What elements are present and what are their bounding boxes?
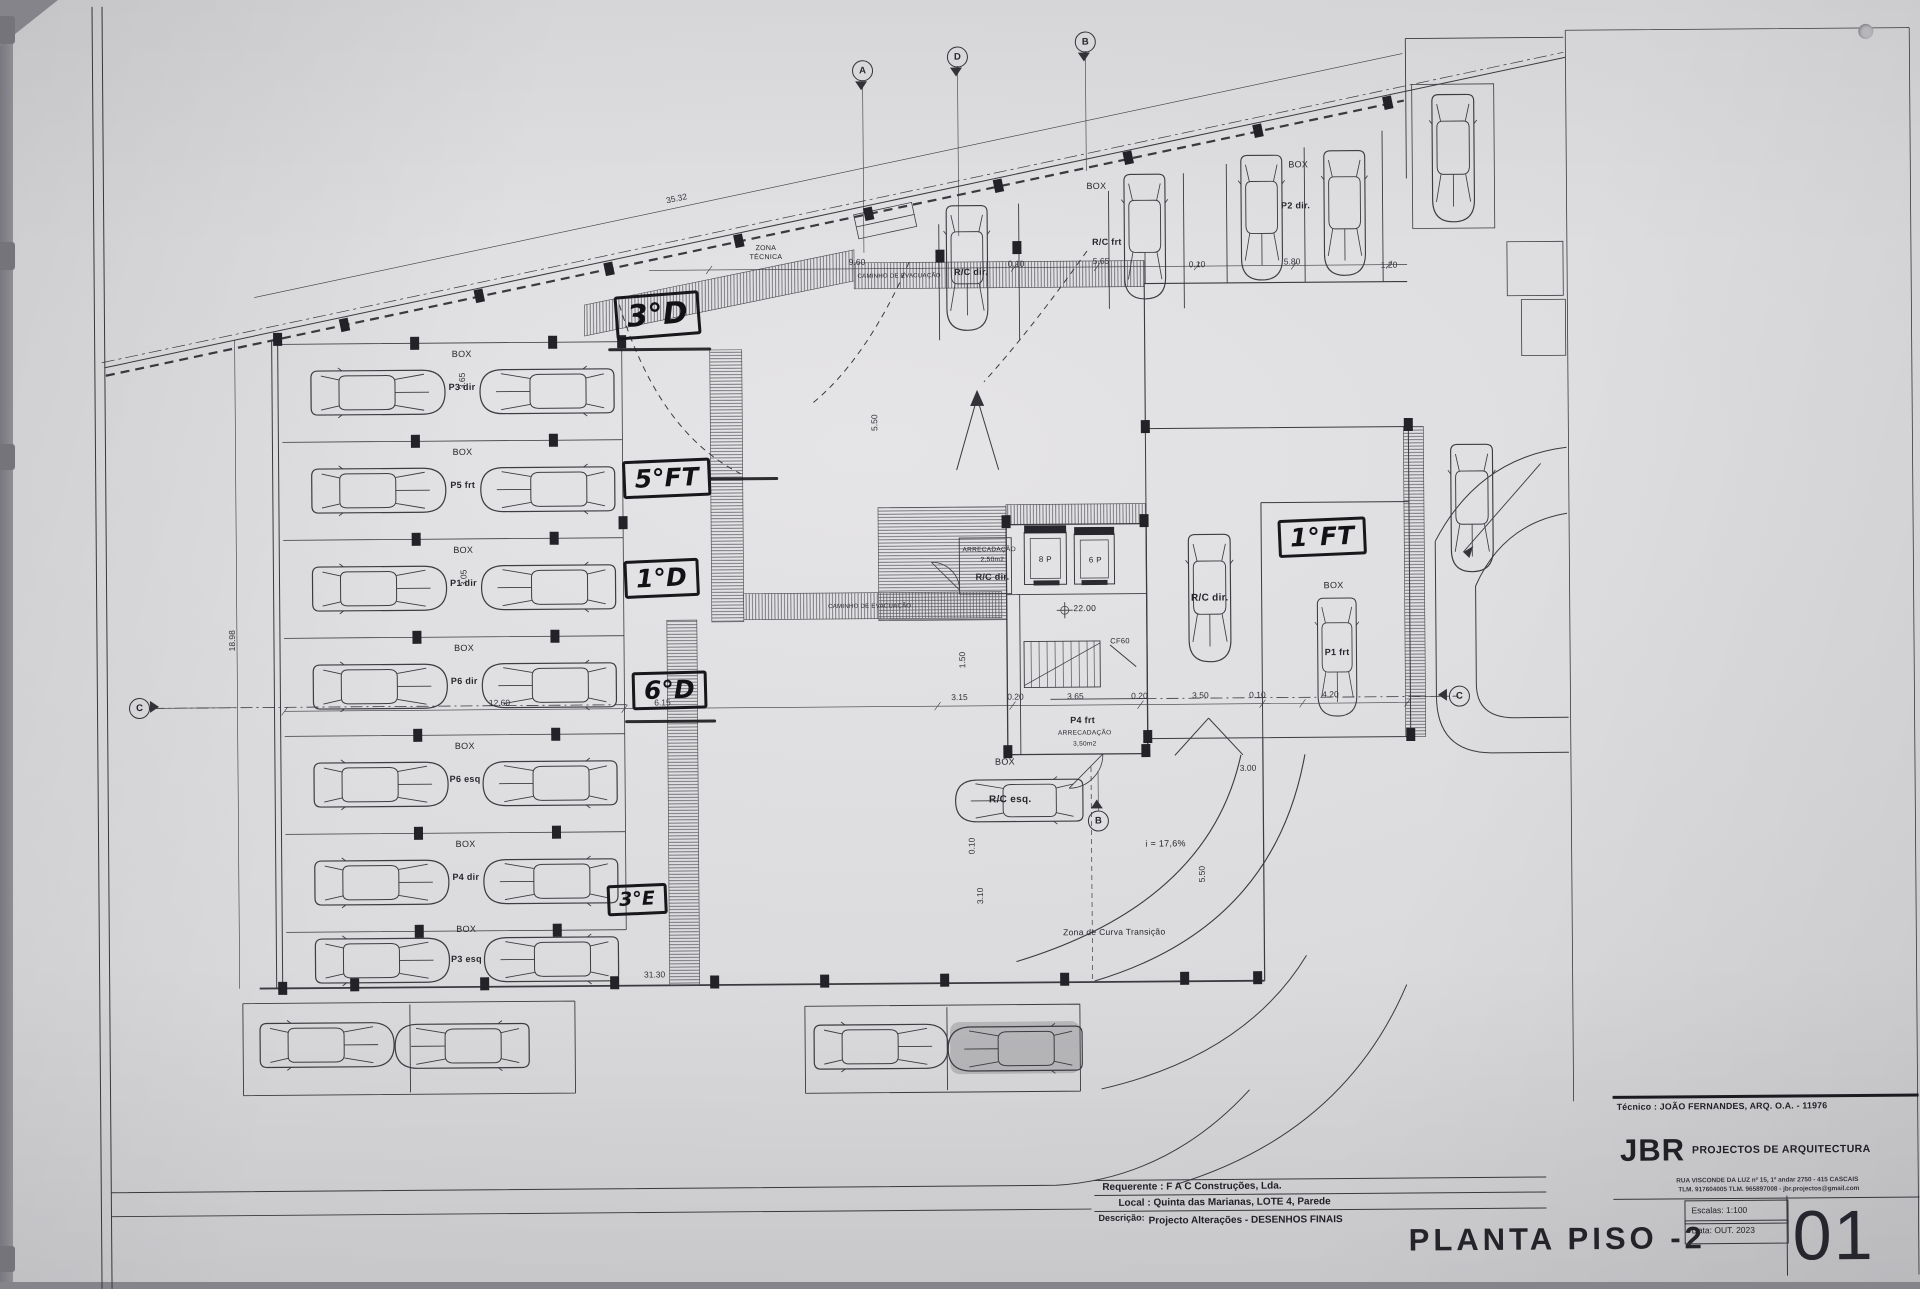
plan-label: ARRECADAÇÃO [963, 546, 1017, 553]
dimension-label: 5.50 [1197, 866, 1207, 883]
dimension-label: 0.10 [1189, 259, 1206, 269]
plan-label: P5 frt [450, 480, 475, 490]
plan-label: 3,50m2 [1073, 740, 1097, 747]
dimension-label: 0.20 [1007, 692, 1024, 702]
dimension-label: 5.50 [869, 414, 879, 431]
section-marker-letter: A [852, 60, 873, 81]
dimension-label: 0.10 [1008, 259, 1025, 269]
plan-label: BOX [1086, 181, 1106, 191]
section-marker-arrow-icon [855, 81, 867, 90]
car [1429, 94, 1477, 222]
section-marker: B [1075, 31, 1096, 52]
car [480, 366, 614, 417]
photo-left-edge [0, 0, 13, 1282]
plan-label: TÉCNICA [750, 254, 783, 261]
dimension-label: 1.20 [1381, 260, 1398, 270]
plan-label: CF60 [1110, 636, 1130, 645]
dimension-label: 0.10 [967, 838, 977, 855]
section-marker-letter: C [129, 698, 150, 719]
handwritten-label: 5°FT [622, 457, 712, 499]
section-marker-letter: D [947, 46, 968, 67]
plan-label: 6 P [1089, 555, 1102, 564]
plan-label: BOX [456, 839, 476, 849]
hole-punch [1858, 24, 1873, 39]
structural-column [549, 434, 558, 447]
columns-layer [271, 95, 1417, 995]
structural-column [350, 978, 359, 991]
handwritten-label: 3°D [613, 290, 701, 340]
plan-label: P2 dir. [1281, 200, 1310, 210]
structural-column [1012, 241, 1021, 254]
dimension-label: 4.20 [1322, 689, 1339, 699]
plan-label: BOX [452, 349, 472, 359]
structural-column [410, 337, 419, 350]
car [1321, 151, 1368, 276]
structural-column [414, 827, 423, 840]
firm-contacts: TLM. 917604005 TLM. 965897008 - jbr.proj… [1678, 1185, 1859, 1193]
structural-column [550, 630, 559, 643]
descricao-label: Descrição: [1098, 1213, 1144, 1223]
structural-column [863, 206, 874, 221]
handwritten-label: 6°D [632, 670, 708, 710]
structural-column [1252, 123, 1263, 138]
structural-column [935, 250, 944, 263]
section-marker: D [947, 46, 968, 67]
plan-label: R/C dir. [954, 267, 988, 277]
plan-label: P4 frt [1070, 715, 1095, 725]
car [481, 562, 615, 613]
plan-label: R/C frt [1092, 237, 1122, 247]
section-marker-letter: B [1088, 810, 1109, 831]
plan-label: CAMINHO DE EVACUAÇÃO [857, 273, 940, 280]
firm-name: PROJECTOS DE ARQUITECTURA [1692, 1143, 1871, 1156]
section-marker-arrow-icon [1091, 799, 1103, 808]
structural-column [339, 318, 350, 333]
car [260, 1020, 394, 1071]
structural-column [1143, 730, 1152, 743]
section-marker: C [129, 698, 150, 719]
structural-column [733, 233, 744, 248]
dimension-label: 3.10 [975, 888, 985, 905]
structural-column [1141, 744, 1150, 757]
plan-label: R/C esq. [989, 794, 1032, 805]
structural-column [412, 533, 421, 546]
section-marker: C [1449, 686, 1470, 707]
drawing-title: PLANTA PISO -2 [1409, 1220, 1706, 1258]
dimension-label: 1.50 [957, 652, 967, 669]
tecnico-line: Técnico : JOÃO FERNANDES, ARQ. O.A. - 11… [1617, 1100, 1828, 1112]
structural-column [1180, 972, 1189, 985]
plan-label: BOX [453, 545, 473, 555]
binder-tab [0, 444, 15, 470]
plan-label: P1 frt [1325, 647, 1350, 657]
sheet-number: 01 [1792, 1195, 1875, 1276]
dimension-label: 31.30 [644, 969, 665, 979]
structural-column [710, 975, 719, 988]
structural-column [1404, 418, 1413, 431]
structural-column [474, 289, 485, 304]
plan-label: P3 esq [451, 954, 482, 964]
section-marker-arrow-icon [950, 68, 962, 77]
plan-label: P4 dir [452, 872, 479, 882]
dimension-label: 0.20 [1131, 691, 1148, 701]
plan-label: CAMINHO DE EVACUAÇÃO [828, 603, 911, 610]
dimension-label: 3.00 [1240, 763, 1257, 773]
section-marker: A [852, 60, 873, 81]
binder-tab [0, 16, 15, 44]
car [313, 661, 447, 712]
structural-column [940, 974, 949, 987]
car [315, 857, 449, 908]
dimension-label: 9.60 [849, 257, 866, 267]
dimension-label: 3.15 [951, 692, 968, 702]
descricao-value: Projecto Alterações - DESENHOS FINAIS [1149, 1214, 1343, 1227]
drawing-sheet: BOXP3 dirBOXP5 frtBOXP1 dirBOXP6 dirBOXP… [7, 0, 1920, 1289]
requerente-line: Requerente : F A C Construções, Lda. [1102, 1181, 1281, 1193]
car [484, 856, 618, 907]
structural-column [820, 975, 829, 988]
structural-column [1141, 420, 1150, 433]
plan-label: BOX [1324, 580, 1344, 590]
plan-label: i = 17,6% [1145, 838, 1186, 848]
structural-column [411, 435, 420, 448]
dimension-label: 0.10 [1249, 690, 1266, 700]
structural-column [610, 976, 619, 989]
dimension-label: 18.98 [227, 630, 237, 651]
car [814, 1021, 948, 1072]
car [315, 935, 449, 986]
plan-label: BOX [454, 643, 474, 653]
structural-column [273, 333, 282, 346]
plan-label: Zona de Curva Transição [1063, 926, 1165, 937]
handwritten-label: 1°FT [1277, 516, 1367, 558]
data-cell: Data: OUT. 2023 [1685, 1220, 1789, 1245]
structural-column [1122, 150, 1133, 165]
car [395, 1020, 529, 1071]
dimension-label: 12.60 [489, 698, 510, 708]
handwritten-label: 1°D [623, 558, 699, 599]
car [1238, 155, 1285, 280]
structural-column [1406, 728, 1415, 741]
local-line: Local : Quinta das Marianas, LOTE 4, Par… [1118, 1196, 1330, 1209]
plan-label: R/C dir. [1191, 592, 1228, 603]
dimension-label: 5.80 [1284, 256, 1301, 266]
plan-label: 22.00 [1073, 603, 1096, 613]
section-marker-letter: B [1075, 31, 1096, 52]
dimension-label: 3.65 [1067, 691, 1084, 701]
structural-column [603, 262, 614, 277]
plan-label: BOX [456, 924, 476, 934]
dimension-label: 3.05 [458, 570, 468, 587]
plan-label: ARRECADAÇÃO [1058, 729, 1112, 736]
structural-column [1060, 973, 1069, 986]
structural-column [1002, 515, 1011, 528]
structural-column [412, 631, 421, 644]
structural-column [550, 532, 559, 545]
car [312, 465, 446, 516]
structural-column [553, 924, 562, 937]
dimension-label: 3.65 [457, 373, 467, 390]
cars-layer [253, 94, 1500, 1079]
plan-label: 8 P [1039, 555, 1052, 564]
section-marker: B [1088, 810, 1109, 831]
firm-address: RUA VISCONDE DA LUZ nº 15, 1º andar 2750… [1676, 1176, 1858, 1184]
structural-column [551, 728, 560, 741]
structural-column [413, 729, 422, 742]
structural-column [1253, 971, 1262, 984]
plan-label: R/C dir. [976, 572, 1010, 582]
dimension-label: 5.65 [1093, 256, 1110, 266]
structural-column [1140, 514, 1149, 527]
structural-column [415, 925, 424, 938]
car [314, 759, 448, 810]
car [481, 464, 615, 515]
car [312, 563, 446, 614]
section-marker-arrow-icon [1078, 53, 1090, 62]
binder-tab [0, 1246, 15, 1272]
plan-label: 2,50m2 [981, 556, 1005, 563]
structural-column [552, 826, 561, 839]
section-marker-letter: C [1449, 686, 1470, 707]
structural-column [278, 982, 287, 995]
plan-label: P6 dir [451, 676, 478, 686]
plan-label: ZONA [756, 245, 777, 252]
firm-logo: JBR [1620, 1132, 1685, 1169]
binder-tab [0, 242, 15, 270]
car [483, 758, 617, 809]
plan-label: BOX [455, 741, 475, 751]
handwritten-label: 3°E [607, 883, 668, 917]
plan-label: BOX [452, 447, 472, 457]
plan-label: BOX [1288, 159, 1308, 169]
section-marker-arrow-icon [1438, 689, 1447, 701]
paper-sheet: BOXP3 dirBOXP5 frtBOXP1 dirBOXP6 dirBOXP… [12, 0, 1920, 1282]
car [484, 934, 618, 985]
car [311, 367, 445, 418]
structural-column [993, 178, 1004, 193]
plan-label: BOX [995, 757, 1015, 767]
structural-column [548, 336, 557, 349]
structural-column [619, 516, 628, 529]
car [1448, 444, 1496, 572]
structural-column [1382, 95, 1393, 110]
dimension-label: 3.50 [1192, 690, 1209, 700]
structural-column [480, 977, 489, 990]
plan-label: P6 esq [450, 774, 481, 784]
section-marker-arrow-icon [150, 701, 159, 713]
